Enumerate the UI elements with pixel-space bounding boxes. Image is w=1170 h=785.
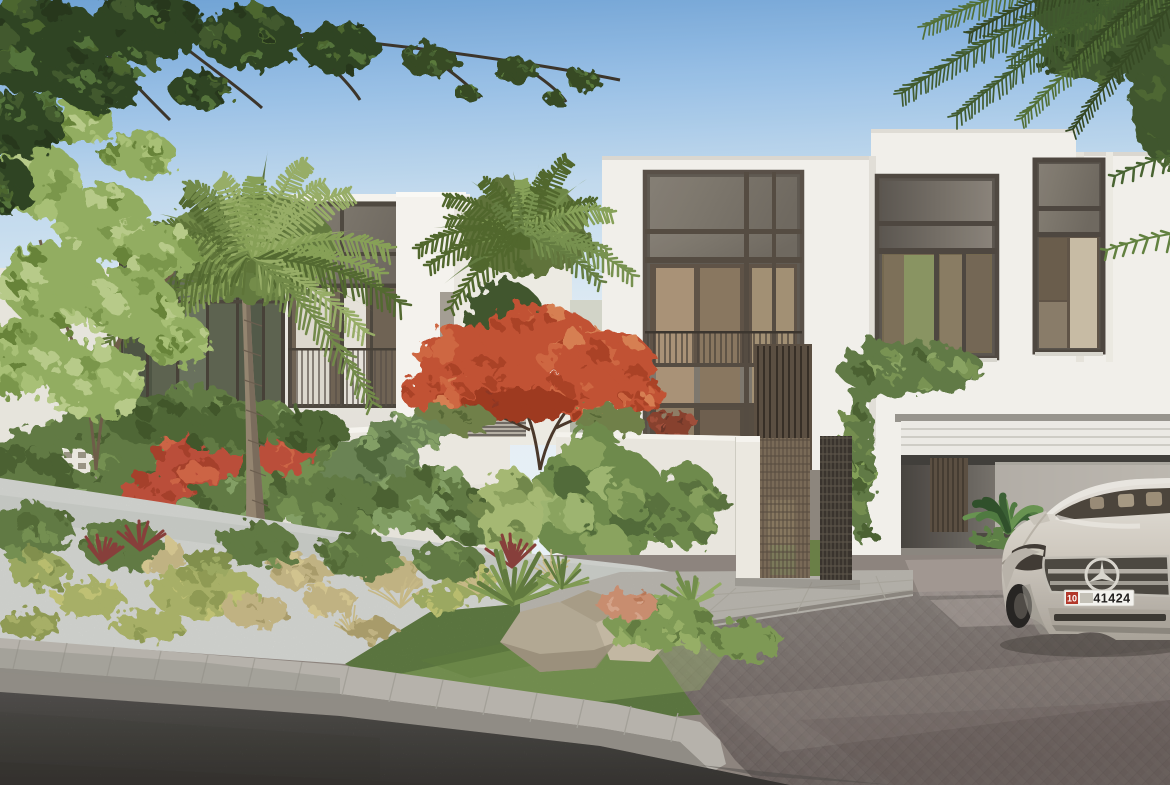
svg-text:10: 10 [1067,594,1077,604]
svg-text:41424: 41424 [1093,592,1130,606]
